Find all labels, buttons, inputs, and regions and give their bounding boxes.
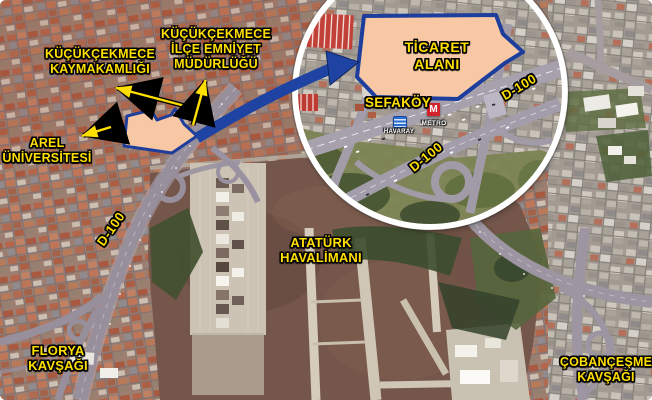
map-artwork: [0, 0, 652, 400]
metro-icon-letter: M: [429, 104, 437, 115]
havaray-icon: [393, 116, 407, 128]
metro-icon: M: [427, 103, 440, 116]
satellite-map: KÜÇÜKÇEKMECE KAYMAKAMLIĞI KÜÇÜKÇEKMECE İ…: [0, 0, 652, 400]
